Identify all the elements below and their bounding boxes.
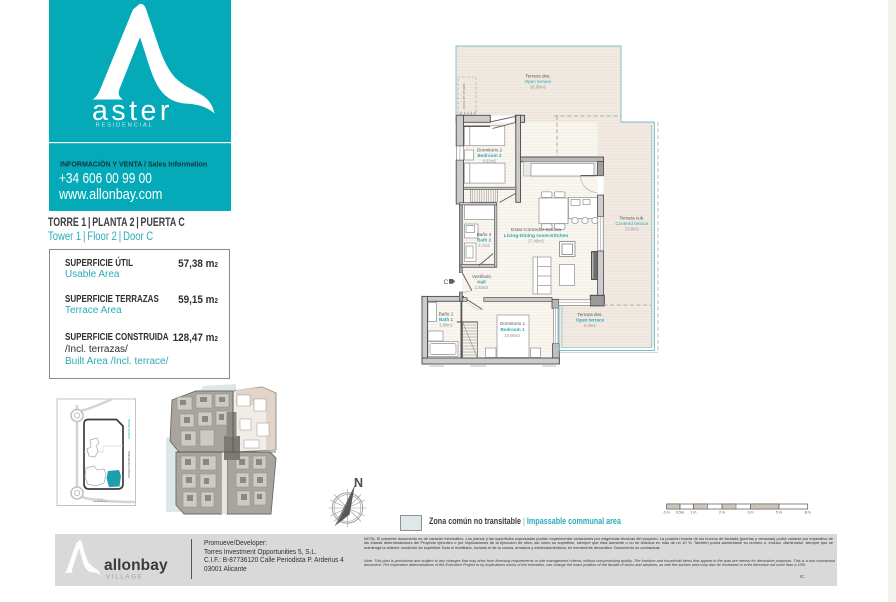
svg-text:zona de secado: zona de secado: [462, 83, 466, 108]
svg-text:Dormitorio 1: Dormitorio 1: [500, 321, 525, 326]
svg-text:8 m: 8 m: [805, 511, 811, 515]
svg-text:Terraza cub.: Terraza cub.: [619, 216, 644, 221]
svg-text:8,4m2: 8,4m2: [584, 323, 596, 328]
svg-text:Baño 2: Baño 2: [477, 232, 492, 237]
svg-text:Bath 1: Bath 1: [439, 317, 453, 322]
svg-text:VILLAGE: VILLAGE: [106, 575, 144, 581]
svg-text:3,7m2: 3,7m2: [478, 243, 490, 248]
svg-text:N: N: [354, 476, 363, 490]
svg-text:Open terrace: Open terrace: [576, 318, 605, 323]
svg-text:2,48m2: 2,48m2: [475, 285, 489, 290]
svg-text:Dormitorio 2: Dormitorio 2: [477, 148, 502, 153]
svg-text:10,95m2: 10,95m2: [505, 333, 522, 338]
svg-text:2 m: 2 m: [719, 511, 725, 515]
svg-text:FRONT MARE: FRONT MARE: [127, 419, 131, 439]
svg-text:C: C: [444, 279, 449, 286]
svg-text:Hall: Hall: [477, 280, 485, 285]
svg-text:3,89m2: 3,89m2: [439, 323, 453, 328]
svg-text:Bedroom 1: Bedroom 1: [501, 327, 525, 332]
svg-text:5 m: 5 m: [776, 511, 782, 515]
svg-text:Bath 2: Bath 2: [477, 238, 491, 243]
svg-text:Baño 1: Baño 1: [439, 312, 454, 317]
svg-text:0 m: 0 m: [664, 511, 670, 515]
svg-text:8,91m2: 8,91m2: [483, 159, 497, 164]
svg-text:allonbay: allonbay: [104, 557, 168, 574]
svg-text:Terraza des.: Terraza des.: [525, 74, 550, 79]
svg-text:27,45m2: 27,45m2: [528, 239, 545, 244]
svg-text:Open terrace: Open terrace: [525, 79, 552, 84]
svg-text:Bedroom 2: Bedroom 2: [478, 153, 502, 158]
svg-text:Covered terrace: Covered terrace: [616, 221, 649, 226]
svg-text:Terraza des.: Terraza des.: [577, 312, 602, 317]
svg-text:Estar-Comedor-Cocina: Estar-Comedor-Cocina: [511, 227, 561, 233]
svg-text:3 m: 3 m: [748, 511, 754, 515]
svg-text:23,8m2: 23,8m2: [625, 227, 639, 232]
svg-text:1 m: 1 m: [690, 511, 696, 515]
svg-text:0,5m: 0,5m: [676, 511, 684, 515]
svg-text:Vestíbulo: Vestíbulo: [472, 274, 491, 279]
svg-text:PASEO PEATONAL: PASEO PEATONAL: [127, 450, 131, 478]
svg-text:GYR: GYR: [97, 498, 103, 502]
svg-text:26,95m2: 26,95m2: [530, 85, 547, 90]
